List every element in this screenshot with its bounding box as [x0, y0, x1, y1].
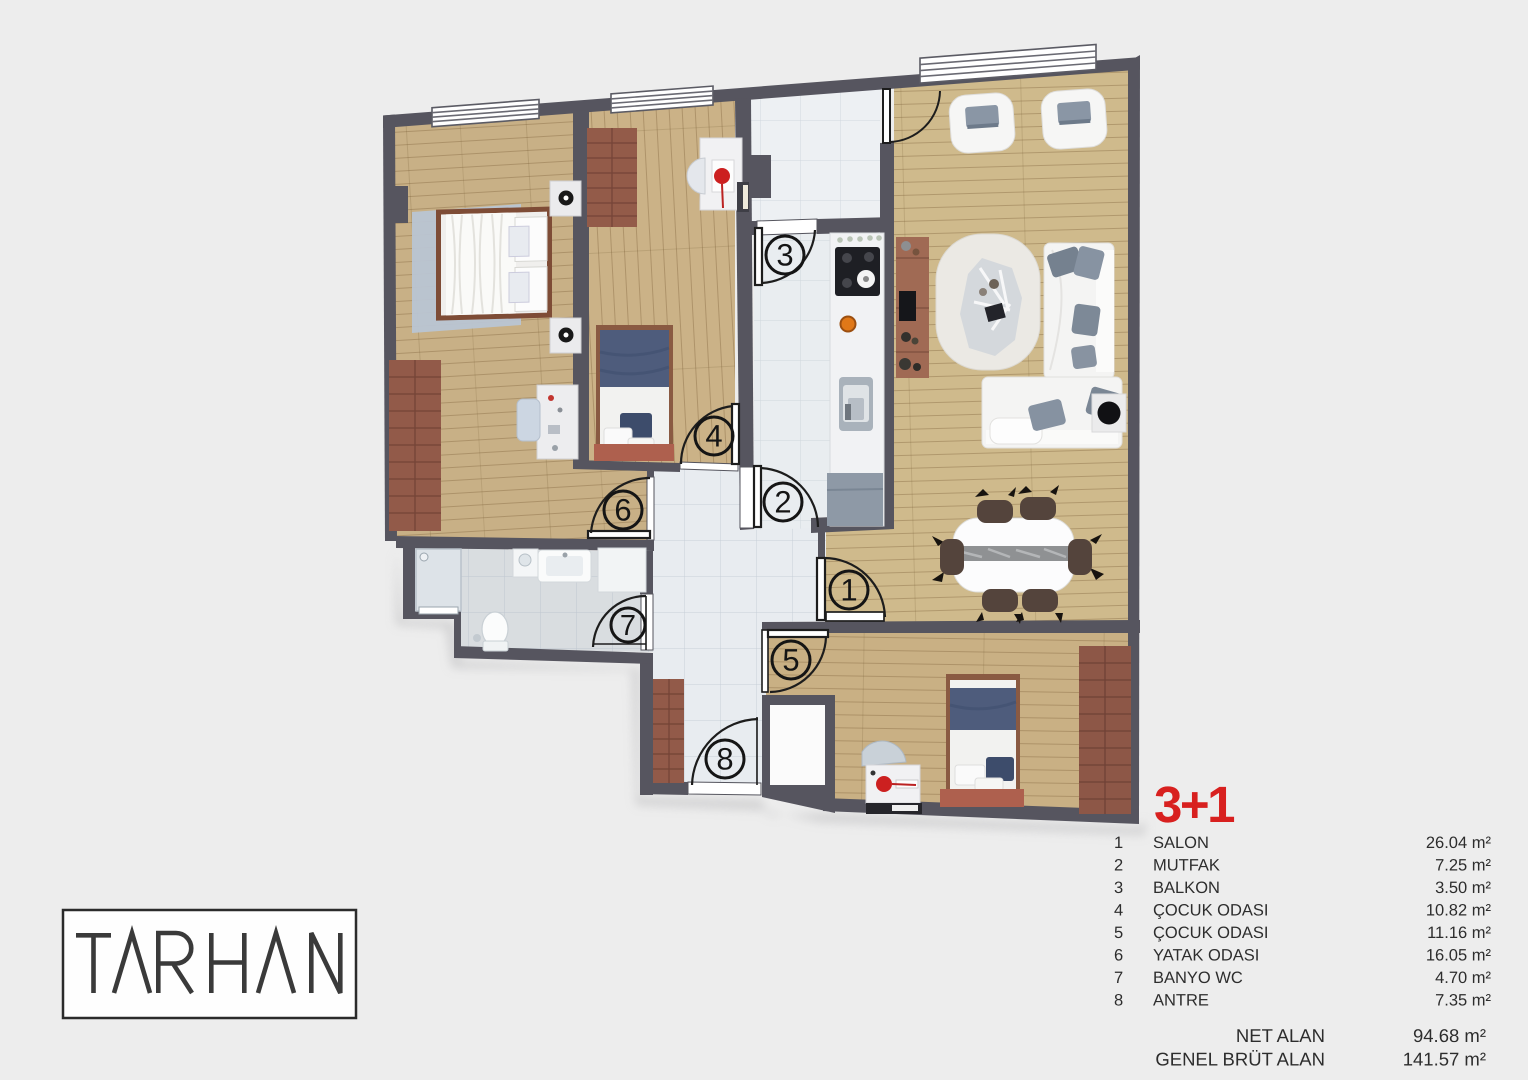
svg-text:6: 6: [1114, 947, 1123, 965]
svg-text:BANYO WC: BANYO WC: [1153, 969, 1243, 987]
svg-text:7.35 m²: 7.35 m²: [1435, 992, 1491, 1010]
svg-text:4: 4: [1114, 902, 1123, 920]
svg-text:2: 2: [774, 485, 791, 520]
svg-text:ÇOCUK ODASI: ÇOCUK ODASI: [1153, 902, 1269, 920]
svg-text:26.04 m²: 26.04 m²: [1426, 834, 1492, 852]
svg-text:NET ALAN: NET ALAN: [1236, 1025, 1325, 1046]
svg-text:6: 6: [614, 493, 631, 528]
svg-text:SALON: SALON: [1153, 834, 1209, 852]
svg-text:5: 5: [782, 643, 799, 678]
svg-text:11.16 m²: 11.16 m²: [1427, 924, 1491, 942]
svg-text:4.70 m²: 4.70 m²: [1435, 969, 1491, 987]
svg-text:3.50 m²: 3.50 m²: [1435, 879, 1491, 897]
svg-text:8: 8: [716, 742, 733, 777]
svg-text:141.57 m²: 141.57 m²: [1403, 1049, 1486, 1070]
svg-text:7: 7: [1114, 969, 1123, 987]
svg-text:4: 4: [705, 419, 722, 454]
svg-text:YATAK ODASI: YATAK ODASI: [1153, 947, 1259, 965]
svg-text:ÇOCUK ODASI: ÇOCUK ODASI: [1153, 924, 1269, 942]
svg-text:7.25 m²: 7.25 m²: [1435, 857, 1491, 875]
svg-text:3+1: 3+1: [1154, 776, 1234, 833]
svg-text:10.82 m²: 10.82 m²: [1426, 902, 1492, 920]
svg-text:ANTRE: ANTRE: [1153, 992, 1209, 1010]
svg-text:1: 1: [1114, 834, 1123, 852]
svg-text:GENEL BRÜT ALAN: GENEL BRÜT ALAN: [1155, 1049, 1325, 1070]
svg-text:MUTFAK: MUTFAK: [1153, 857, 1220, 875]
svg-text:3: 3: [1114, 879, 1123, 897]
svg-text:16.05 m²: 16.05 m²: [1426, 947, 1492, 965]
svg-text:5: 5: [1114, 924, 1123, 942]
svg-text:1: 1: [840, 573, 857, 608]
svg-text:BALKON: BALKON: [1153, 879, 1220, 897]
svg-text:94.68 m²: 94.68 m²: [1413, 1025, 1486, 1046]
svg-text:8: 8: [1114, 992, 1123, 1010]
svg-text:2: 2: [1114, 857, 1123, 875]
svg-text:7: 7: [620, 610, 636, 642]
svg-text:3: 3: [776, 238, 793, 273]
